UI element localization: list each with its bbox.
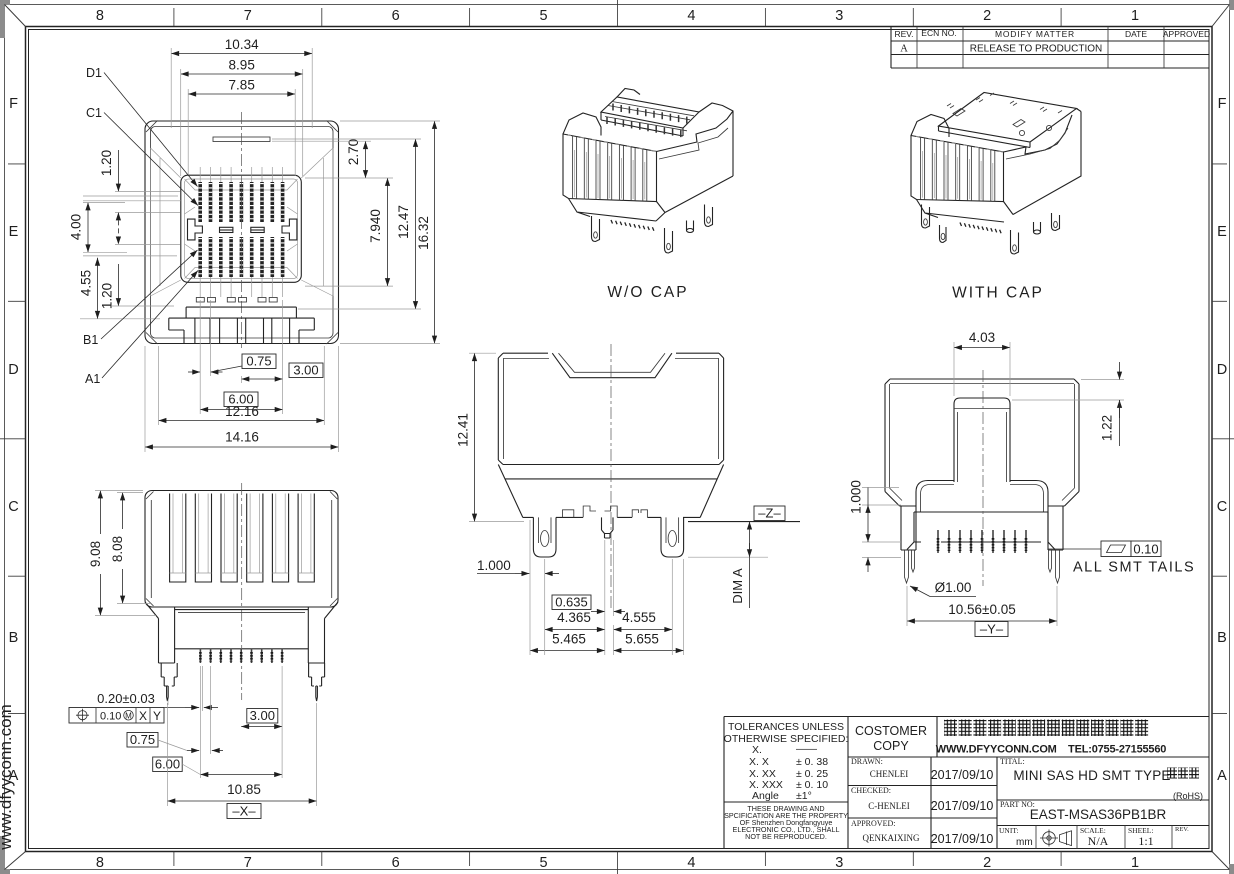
svg-text:(RoHS): (RoHS) <box>1173 791 1203 801</box>
svg-text:WITH CAP: WITH CAP <box>952 285 1044 302</box>
svg-text:5.465: 5.465 <box>552 632 586 647</box>
svg-text:9.08: 9.08 <box>88 541 103 567</box>
svg-text:0.20±0.03: 0.20±0.03 <box>97 691 155 706</box>
svg-text:C: C <box>1217 499 1227 515</box>
svg-text:10.34: 10.34 <box>225 37 259 52</box>
svg-text:Y: Y <box>153 709 161 723</box>
svg-text:12.41: 12.41 <box>456 413 471 447</box>
svg-text:REV.: REV. <box>1175 826 1189 833</box>
svg-text:–Y–: –Y– <box>980 622 1004 637</box>
svg-text:D1: D1 <box>86 66 102 80</box>
svg-text:2017/09/10: 2017/09/10 <box>931 799 994 813</box>
svg-text:E: E <box>1217 224 1227 240</box>
svg-text:±1°: ±1° <box>796 790 812 802</box>
svg-text:C1: C1 <box>86 106 102 120</box>
svg-text:0.635: 0.635 <box>555 595 588 610</box>
svg-text:4: 4 <box>687 8 695 24</box>
svg-text:TOLERANCES UNLESS: TOLERANCES UNLESS <box>728 721 844 733</box>
svg-text:Ø1.00: Ø1.00 <box>935 580 972 595</box>
svg-text:ECN NO.: ECN NO. <box>921 28 956 38</box>
svg-text:4: 4 <box>687 855 695 871</box>
svg-text:± 0. 38: ± 0. 38 <box>796 756 828 768</box>
svg-text:Angle: Angle <box>752 790 779 802</box>
svg-text:F: F <box>9 96 18 112</box>
svg-text:TITAL:: TITAL: <box>1000 757 1025 766</box>
svg-text:2017/09/10: 2017/09/10 <box>931 768 994 782</box>
svg-text:8: 8 <box>96 8 104 24</box>
svg-text:1.20: 1.20 <box>100 283 115 309</box>
svg-text:14.16: 14.16 <box>225 430 259 445</box>
svg-text:1.000: 1.000 <box>477 558 511 573</box>
svg-text:OTHERWISE SPECIFIED:: OTHERWISE SPECIFIED: <box>724 733 849 745</box>
svg-text:CHENLEI: CHENLEI <box>870 769 909 779</box>
svg-text:6: 6 <box>392 8 400 24</box>
svg-text:5: 5 <box>540 8 548 24</box>
svg-text:8: 8 <box>96 855 104 871</box>
svg-text:1: 1 <box>1131 8 1139 24</box>
svg-text:X.: X. <box>752 744 762 756</box>
svg-text:7.85: 7.85 <box>229 78 255 93</box>
svg-text:C: C <box>8 499 18 515</box>
svg-text:1: 1 <box>1131 855 1139 871</box>
svg-text:5: 5 <box>540 855 548 871</box>
svg-text:C-HENLEI: C-HENLEI <box>868 801 910 811</box>
svg-text:A: A <box>1217 768 1227 784</box>
svg-text:0.75: 0.75 <box>246 354 271 369</box>
svg-text:——: —— <box>796 743 818 755</box>
svg-text:W/O CAP: W/O CAP <box>607 284 688 301</box>
svg-text:7: 7 <box>244 8 252 24</box>
svg-text:N/A: N/A <box>1088 834 1109 848</box>
svg-text:X: X <box>139 709 147 723</box>
svg-text:M: M <box>125 712 132 721</box>
svg-text:10.56±0.05: 10.56±0.05 <box>948 602 1015 617</box>
svg-text:E: E <box>9 224 19 240</box>
svg-text:1:1: 1:1 <box>1138 834 1153 848</box>
svg-text:–Z–: –Z– <box>758 506 781 521</box>
svg-text:4.55: 4.55 <box>79 270 94 296</box>
svg-text:B1: B1 <box>83 333 98 347</box>
svg-text:4.03: 4.03 <box>969 330 995 345</box>
svg-text:UNIT:: UNIT: <box>999 826 1019 835</box>
svg-text:0.10: 0.10 <box>1133 542 1158 557</box>
svg-text:12.16: 12.16 <box>225 404 259 419</box>
svg-text:COSTOMER: COSTOMER <box>855 724 927 738</box>
svg-text:16.32: 16.32 <box>416 216 431 250</box>
svg-text:ALL SMT TAILS: ALL SMT TAILS <box>1073 560 1195 576</box>
svg-text:RELEASE TO PRODUCTION: RELEASE TO PRODUCTION <box>970 44 1102 55</box>
svg-text:A: A <box>900 44 908 55</box>
svg-text:8.08: 8.08 <box>110 536 125 562</box>
svg-text:1.20: 1.20 <box>99 150 114 176</box>
svg-text:3: 3 <box>835 855 843 871</box>
svg-text:10.85: 10.85 <box>227 782 261 797</box>
svg-text:D: D <box>8 362 18 378</box>
svg-text:MODIFY MATTER: MODIFY MATTER <box>995 29 1075 39</box>
svg-text:2: 2 <box>983 855 991 871</box>
svg-text:2.70: 2.70 <box>346 139 361 165</box>
svg-text:D: D <box>1217 362 1227 378</box>
svg-text:F: F <box>1218 96 1227 112</box>
svg-text:2017/09/10: 2017/09/10 <box>931 832 994 846</box>
svg-text:APPROVED:: APPROVED: <box>851 819 895 828</box>
svg-text:0.75: 0.75 <box>130 732 155 747</box>
svg-text:4.555: 4.555 <box>622 610 656 625</box>
svg-text:1.22: 1.22 <box>1100 415 1115 441</box>
svg-text:MINI SAS HD SMT TYPE: MINI SAS HD SMT TYPE <box>1013 768 1170 783</box>
svg-text:WWW.DFYYCONN.COM TEL:0755-2: WWW.DFYYCONN.COM TEL:0755-27155560 <box>936 744 1166 756</box>
svg-text:B: B <box>9 630 19 646</box>
svg-text:B: B <box>1217 630 1227 646</box>
svg-text:EAST-MSAS36PB1BR: EAST-MSAS36PB1BR <box>1030 807 1167 822</box>
svg-text:6: 6 <box>392 855 400 871</box>
svg-text:X. X: X. X <box>749 756 769 768</box>
svg-text:mm: mm <box>1016 837 1033 848</box>
svg-text:2: 2 <box>983 8 991 24</box>
svg-text:3: 3 <box>835 8 843 24</box>
svg-text:0.10: 0.10 <box>100 711 121 723</box>
svg-text:5.655: 5.655 <box>625 632 659 647</box>
svg-text:4.365: 4.365 <box>557 610 591 625</box>
svg-text:REV.: REV. <box>894 29 913 39</box>
svg-text:QENKAIXING: QENKAIXING <box>863 833 920 843</box>
svg-text:7.940: 7.940 <box>368 209 383 243</box>
svg-text:4.00: 4.00 <box>69 214 84 240</box>
svg-text:www.dfyyconn.com: www.dfyyconn.com <box>0 704 15 851</box>
svg-text:COPY: COPY <box>873 739 909 753</box>
svg-text:1.000: 1.000 <box>849 480 864 514</box>
svg-text:DATE: DATE <box>1125 29 1147 39</box>
svg-text:DIM A: DIM A <box>730 568 745 604</box>
svg-text:NOT BE REPRODUCED.: NOT BE REPRODUCED. <box>745 832 827 841</box>
svg-text:7: 7 <box>244 855 252 871</box>
svg-text:DRAWN:: DRAWN: <box>851 757 883 766</box>
svg-text:CHECKED:: CHECKED: <box>851 786 891 795</box>
svg-text:12.47: 12.47 <box>396 205 411 239</box>
svg-text:8.95: 8.95 <box>229 58 255 73</box>
svg-text:–X–: –X– <box>232 804 256 819</box>
svg-text:3.00: 3.00 <box>250 708 275 723</box>
svg-text:APPROVED: APPROVED <box>1163 29 1210 39</box>
svg-text:A1: A1 <box>85 372 100 386</box>
svg-text:3.00: 3.00 <box>293 363 318 378</box>
